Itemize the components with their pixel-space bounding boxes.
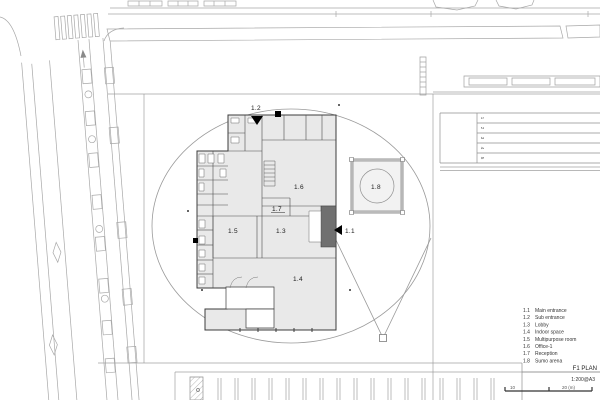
boundary-diagonals <box>336 238 431 338</box>
title-block: F1 PLAN 1:200@A3 10 20 (m) <box>505 363 600 400</box>
key-table <box>440 113 600 163</box>
legend-code: 1.1 <box>523 308 530 314</box>
parking-dividers <box>218 378 494 400</box>
road-layer <box>0 12 141 400</box>
key-table-row-label: 1 <box>480 117 485 120</box>
room-label-reception: 1.7 <box>272 206 282 213</box>
wall-block <box>193 238 198 243</box>
legend-code: 1.8 <box>523 358 530 364</box>
crosswalk <box>54 13 99 39</box>
ladder-hatch <box>420 57 426 95</box>
drawing-title: F1 PLAN <box>573 366 597 372</box>
legend-code: 1.4 <box>523 330 530 336</box>
room-label-indoor-space: 1.4 <box>293 276 303 283</box>
windbreak-room <box>309 211 321 242</box>
road-diamond-marking <box>49 335 59 356</box>
road-arrow-marking <box>80 49 87 57</box>
key-table-row-label: 3 <box>480 137 485 140</box>
room-label-sub-entrance: 1.2 <box>251 105 261 112</box>
legend-code: 1.6 <box>523 344 530 350</box>
room-label-office-1: 1.6 <box>294 184 304 191</box>
sidewalk-strip <box>566 25 600 38</box>
hexagon-canopy <box>433 0 478 10</box>
room-label-multipurpose: 1.5 <box>228 228 238 235</box>
legend-label: Multipurpose room <box>535 337 576 343</box>
legend-code: 1.3 <box>523 322 530 328</box>
road-diamond-marking <box>52 242 62 263</box>
entrance-vestibule <box>321 206 336 247</box>
sub-entrance-marker <box>275 111 281 117</box>
sidewalk-strip <box>107 26 563 41</box>
bottom-layer <box>98 363 600 400</box>
top-planter-boxes <box>128 1 236 6</box>
legend: 1.1 Main entrance 1.2 Sub entrance 1.3 L… <box>523 308 576 364</box>
road-corner-arc <box>0 17 21 56</box>
room-label-main-entrance: 1.1 <box>345 228 355 235</box>
survey-marker-square <box>380 335 387 342</box>
roadside-bays <box>104 67 137 363</box>
top-sidewalk-layer <box>107 0 600 41</box>
key-table-row-label: 4 <box>480 147 485 150</box>
legend-label: Sumo arena <box>535 358 562 364</box>
room-label-sumo-arena: 1.8 <box>371 184 381 191</box>
plan-svg: 1 2 3 4 5 <box>0 0 600 400</box>
key-table-row-label: 2 <box>480 127 485 130</box>
room-label-lobby: 1.3 <box>276 228 286 235</box>
legend-label: Office-1 <box>535 344 553 350</box>
building <box>193 111 342 332</box>
legend-code: 1.7 <box>523 351 530 357</box>
scale-bar-mid-label: 10 <box>510 385 516 390</box>
key-table-row-label: 5 <box>480 157 485 160</box>
drawing-scale: 1:200@A3 <box>571 377 595 383</box>
legend-label: Lobby <box>535 322 549 328</box>
legend-code: 1.2 <box>523 315 530 321</box>
legend-label: Main entrance <box>535 308 567 314</box>
hatched-area <box>190 377 203 400</box>
scale-bar-end-label: 20 (m) <box>562 385 576 390</box>
median-planters <box>82 69 115 373</box>
scale-bar <box>505 387 592 391</box>
legend-code: 1.5 <box>523 337 530 343</box>
floor-plan-drawing: 1 2 3 4 5 <box>0 0 600 400</box>
legend-label: Reception <box>535 351 558 357</box>
legend-label: Sub entrance <box>535 315 565 321</box>
legend-label: Indoor space <box>535 330 564 336</box>
